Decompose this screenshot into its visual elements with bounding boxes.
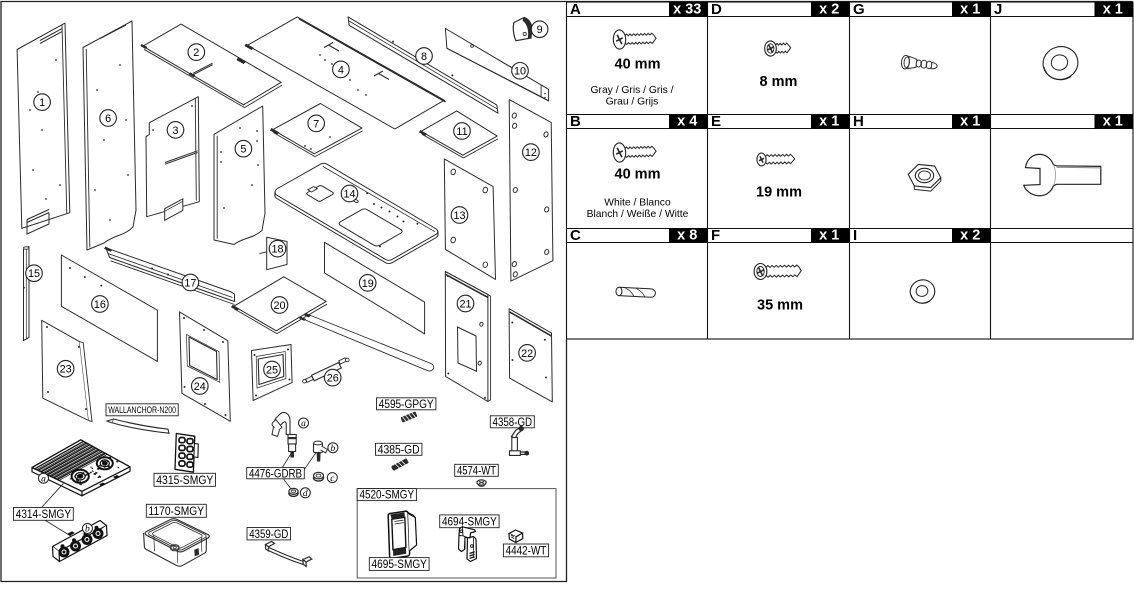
svg-text:F: F: [711, 227, 720, 244]
svg-text:x 1: x 1: [1103, 114, 1123, 130]
svg-text:11: 11: [456, 126, 467, 138]
svg-text:4574-WT: 4574-WT: [457, 465, 496, 477]
svg-text:4314-SMGY: 4314-SMGY: [16, 509, 72, 521]
svg-text:4476-GDRB: 4476-GDRB: [249, 468, 302, 480]
svg-text:4315-SMGY: 4315-SMGY: [156, 475, 213, 487]
svg-text:4442-WT: 4442-WT: [506, 546, 547, 558]
svg-text:5: 5: [240, 144, 246, 156]
svg-text:White / Blanco: White / Blanco: [604, 198, 671, 209]
svg-text:4: 4: [338, 64, 344, 76]
svg-text:d: d: [303, 489, 308, 499]
svg-text:23: 23: [60, 364, 72, 376]
svg-text:x 1: x 1: [1103, 2, 1123, 18]
svg-text:15: 15: [28, 268, 40, 280]
svg-text:2: 2: [193, 47, 199, 59]
svg-text:1: 1: [39, 97, 45, 109]
svg-text:x 2: x 2: [960, 228, 980, 244]
svg-text:x 1: x 1: [960, 2, 980, 18]
svg-text:D: D: [711, 1, 722, 18]
svg-text:x 1: x 1: [819, 114, 839, 130]
svg-text:13: 13: [453, 210, 465, 222]
svg-text:x 1: x 1: [960, 114, 980, 130]
svg-text:x 8: x 8: [677, 228, 697, 244]
svg-text:40 mm: 40 mm: [615, 57, 661, 73]
svg-text:21: 21: [459, 298, 471, 310]
svg-text:26: 26: [327, 373, 339, 385]
svg-text:25: 25: [266, 364, 278, 376]
svg-text:x 33: x 33: [673, 2, 701, 18]
svg-text:8: 8: [421, 51, 427, 63]
svg-text:18: 18: [271, 244, 283, 256]
svg-text:22: 22: [521, 348, 533, 360]
svg-text:I: I: [853, 227, 857, 244]
svg-text:10: 10: [514, 66, 526, 78]
svg-text:4385-GD: 4385-GD: [378, 444, 420, 456]
svg-text:16: 16: [94, 299, 106, 311]
svg-text:x 4: x 4: [677, 114, 697, 130]
svg-text:40 mm: 40 mm: [615, 167, 661, 183]
svg-text:a: a: [301, 419, 306, 429]
svg-text:4695-SMGY: 4695-SMGY: [372, 559, 428, 571]
svg-text:4694-SMGY: 4694-SMGY: [442, 516, 497, 528]
svg-text:3: 3: [172, 125, 178, 137]
svg-text:4359-GD: 4359-GD: [249, 529, 288, 541]
svg-text:Blanch / Weiße / Witte: Blanch / Weiße / Witte: [587, 209, 689, 220]
svg-text:4358-GD: 4358-GD: [493, 417, 533, 429]
svg-text:35 mm: 35 mm: [757, 298, 803, 314]
svg-text:x 2: x 2: [819, 2, 839, 18]
svg-text:19: 19: [362, 278, 374, 290]
svg-text:J: J: [994, 1, 1002, 18]
svg-text:20: 20: [273, 300, 285, 312]
svg-text:x 1: x 1: [819, 228, 839, 244]
svg-text:B: B: [570, 113, 581, 130]
svg-text:17: 17: [184, 277, 196, 289]
svg-text:6: 6: [105, 113, 111, 125]
svg-text:14: 14: [343, 188, 355, 200]
svg-text:4520-SMGY: 4520-SMGY: [359, 490, 414, 502]
svg-text:a: a: [41, 474, 46, 484]
svg-text:1170-SMGY: 1170-SMGY: [149, 506, 205, 518]
svg-text:4595-GPGY: 4595-GPGY: [379, 399, 434, 411]
svg-text:8 mm: 8 mm: [760, 74, 798, 90]
svg-text:E: E: [711, 113, 721, 130]
svg-text:b: b: [85, 525, 90, 535]
svg-text:24: 24: [194, 381, 206, 393]
svg-text:7: 7: [313, 118, 319, 130]
svg-text:Grau / Grijs: Grau / Grijs: [606, 97, 659, 108]
svg-text:A: A: [570, 1, 581, 18]
svg-text:12: 12: [525, 147, 537, 159]
svg-text:WALLANCHOR-N200: WALLANCHOR-N200: [108, 405, 176, 415]
svg-text:Gray / Gris / Gris /: Gray / Gris / Gris /: [591, 85, 674, 96]
svg-text:G: G: [853, 1, 865, 18]
svg-text:H: H: [853, 113, 864, 130]
svg-text:19 mm: 19 mm: [756, 185, 802, 201]
svg-text:b: b: [331, 444, 336, 454]
svg-text:C: C: [570, 227, 581, 244]
svg-text:9: 9: [537, 24, 543, 36]
